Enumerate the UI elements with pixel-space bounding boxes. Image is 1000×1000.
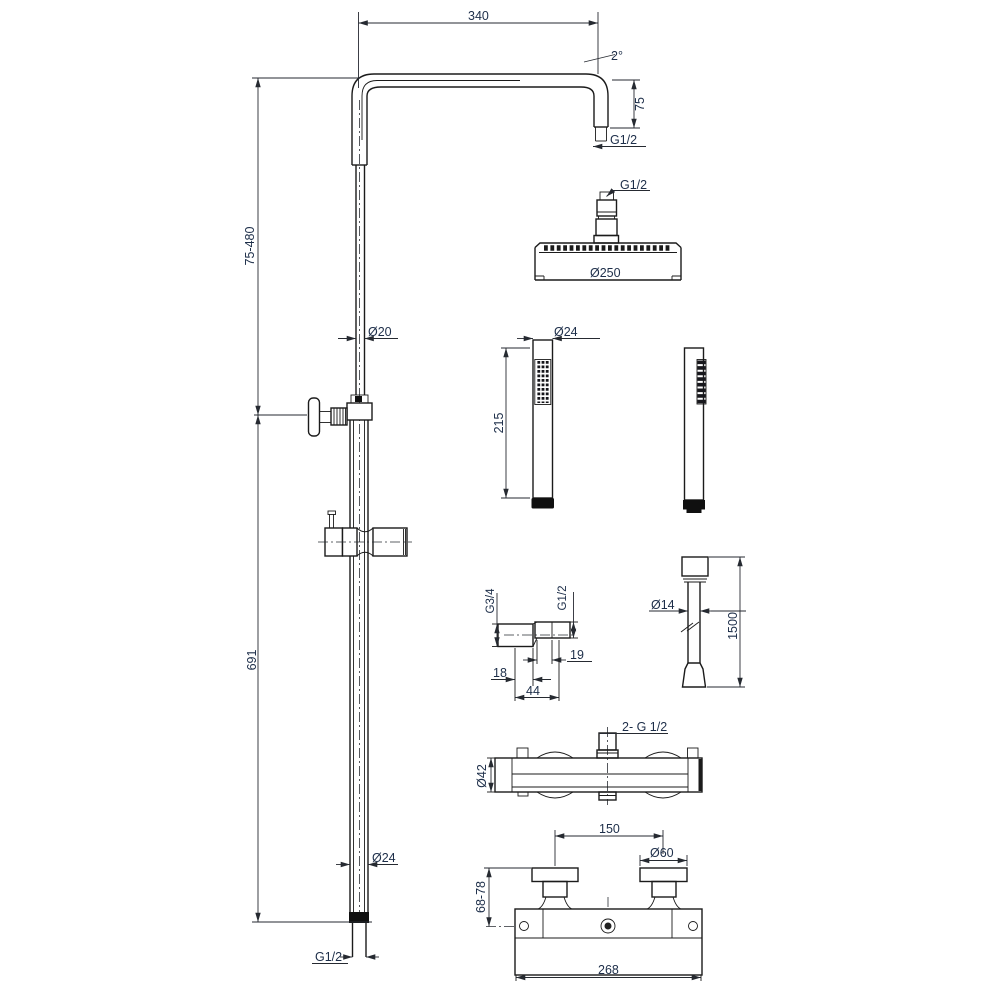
label-head-thread: G1/2 [620, 178, 647, 192]
dim-union-body-length: 18 [493, 666, 507, 680]
dim-riser-upper-dia: Ø20 [368, 325, 392, 339]
dim-handset-length: 215 [492, 413, 506, 434]
thermostatic-valve-front-view: 150 Ø60 68-78 268 [474, 822, 702, 981]
dim-riser-upper-range: 75-480 [243, 226, 257, 265]
handset-side-view [683, 348, 706, 513]
dim-head-dia: Ø250 [590, 266, 621, 280]
wall-union-fitting-view: G3/4 G1/2 19 18 44 [485, 586, 592, 701]
label-union-thread-out: G1/2 [557, 586, 569, 611]
dim-valve-center-distance: 150 [599, 822, 620, 836]
technical-drawing-page: 340 2° 75 G1/2 75-480 691 Ø20 Ø24 G1/2 [0, 0, 1000, 1000]
thermostatic-valve-top-view: 2- G 1/2 Ø42 [475, 720, 702, 805]
label-arm-thread: G1/2 [610, 133, 637, 147]
dim-union-total-length: 44 [526, 684, 540, 698]
dim-arm-drop: 75 [633, 97, 647, 111]
wall-bracket [309, 398, 348, 436]
dim-valve-offset-range: 68-78 [474, 881, 488, 913]
dim-valve-total-width: 268 [598, 963, 619, 977]
dim-valve-handle-dia: Ø60 [650, 846, 674, 860]
shower-hose-view: Ø14 1500 [649, 557, 746, 687]
label-riser-bottom-thread: G1/2 [315, 950, 342, 964]
dim-hose-length: 1500 [726, 612, 740, 640]
overhead-shower-view: G1/2 Ø250 [535, 178, 681, 280]
dim-hose-dia: Ø14 [651, 598, 675, 612]
dim-valve-body-dia: Ø42 [475, 764, 489, 788]
shower-system-drawing: 340 2° 75 G1/2 75-480 691 Ø20 Ø24 G1/2 [0, 0, 1000, 1000]
label-valve-outlets: 2- G 1/2 [622, 720, 667, 734]
handset-front-view: Ø24 215 [492, 325, 600, 509]
riser-dimensions: 340 2° 75 G1/2 75-480 691 Ø20 Ø24 G1/2 [243, 9, 647, 964]
shower-arm-and-riser-view [347, 74, 608, 957]
dim-riser-lower-dia: Ø24 [372, 851, 396, 865]
handset-slider-holder [318, 511, 412, 556]
dim-union-nipple-length: 19 [570, 648, 584, 662]
dim-arm-length: 340 [468, 9, 489, 23]
label-union-thread-wall: G3/4 [485, 588, 497, 614]
dim-handset-dia: Ø24 [554, 325, 578, 339]
dim-riser-lower-length: 691 [245, 650, 259, 671]
dim-arm-angle: 2° [611, 49, 623, 63]
